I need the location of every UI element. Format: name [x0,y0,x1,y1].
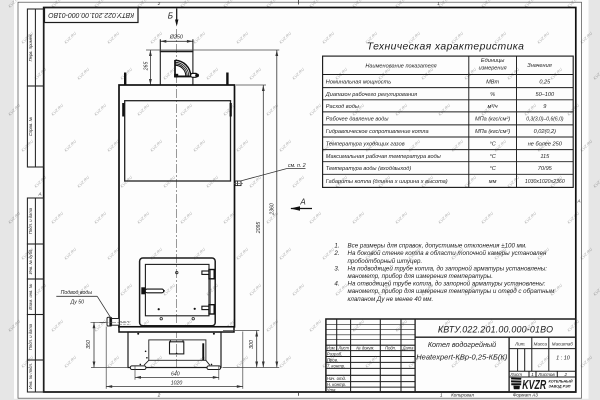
svg-text:На боковой стенке котла в обла: На боковой стенке котла в области топочн… [348,250,547,257]
svg-text:МПа (кгс/см²): МПа (кгс/см²) [475,129,510,135]
svg-text:Утв.: Утв. [327,387,337,392]
svg-text:°С: °С [489,166,496,172]
svg-text:Формат А3: Формат А3 [513,393,539,398]
svg-text:МВт: МВт [486,79,499,85]
svg-text:0,3(3,0)–0,6(6,0): 0,3(3,0)–0,6(6,0) [526,117,564,123]
svg-text:Дата: Дата [402,345,415,350]
svg-text:1 : 10: 1 : 10 [556,355,571,361]
svg-text:Б: Б [168,12,173,21]
svg-text:м³/ч: м³/ч [488,104,498,110]
svg-text:Инв. № дубл.: Инв. № дубл. [28,249,33,275]
svg-text:пробоотборный штуцер.: пробоотборный штуцер. [348,258,423,265]
svg-text:1030х1020х2360: 1030х1020х2360 [525,179,565,185]
svg-text:2: 2 [157,392,161,397]
svg-text:Рабочее давление воды: Рабочее давление воды [326,117,389,123]
svg-text:°С: °С [489,154,496,160]
svg-text:Пров.: Пров. [327,357,338,362]
svg-text:Разраб.: Разраб. [327,351,343,356]
svg-text:МПа (кгс/см²): МПа (кгс/см²) [475,117,510,123]
svg-text:не более 250: не более 250 [528,142,563,148]
svg-text:2360: 2360 [269,203,275,216]
svg-text:Изм.: Изм. [327,345,336,350]
svg-text:Диапазон рабочего регулировани: Диапазон рабочего регулирования [325,92,417,98]
svg-text:мм: мм [489,179,497,185]
svg-text:1.: 1. [334,243,339,250]
svg-text:ЗАВОД РЭП: ЗАВОД РЭП [549,385,571,389]
svg-text:Копировал: Копировал [451,393,474,398]
svg-text:Номинальная мощность: Номинальная мощность [326,79,391,85]
svg-text:Т. контр.: Т. контр. [327,363,346,368]
svg-text:А: А [576,199,580,204]
svg-text:Подп. и дата: Подп. и дата [28,207,33,234]
svg-text:1020: 1020 [171,380,183,386]
svg-text:манометр, прибор для измерения: манометр, прибор для измерения температу… [348,273,493,280]
svg-text:На подводящей трубе котла, до: На подводящей трубе котла, до запорной а… [348,265,548,272]
svg-text:Масса: Масса [534,341,548,346]
svg-text:KVZR: KVZR [522,378,547,392]
svg-text:Все размеры для справок, допус: Все размеры для справок, допустимые откл… [348,243,527,250]
svg-text:Подп. и дата: Подп. и дата [28,323,33,350]
svg-text:Взам. инв. №: Взам. инв. № [28,283,33,309]
svg-text:Максимальная рабочая температу: Максимальная рабочая температура воды [326,154,441,160]
svg-text:3.: 3. [334,265,339,272]
svg-text:°С: °С [489,142,496,148]
svg-text:Лист: Лист [509,372,522,377]
svg-text:Котел водогрейный: Котел водогрейный [428,340,496,349]
svg-text:Техническая характеристика: Техническая характеристика [367,42,525,53]
svg-text:1: 1 [440,393,443,398]
svg-text:Единицы: Единицы [481,58,504,64]
svg-text:Heatexpert-КВр-0,25-КБ(К): Heatexpert-КВр-0,25-КБ(К) [416,353,508,362]
svg-text:А: А [299,198,305,207]
svg-text:КВТУ.022.201.00.000-01ВО: КВТУ.022.201.00.000-01ВО [438,324,553,334]
svg-text:Перв. примен.: Перв. примен. [28,34,33,62]
svg-text:2: 2 [157,1,161,6]
svg-text:КВТУ.022.201.00.000-01ВО: КВТУ.022.201.00.000-01ВО [48,11,134,18]
svg-text:640: 640 [171,371,180,377]
svg-text:300: 300 [249,340,255,349]
svg-text:Лит.: Лит. [514,341,526,346]
svg-text:На отводящей трубе котла, до з: На отводящей трубе котла, до запорной ар… [348,281,546,288]
svg-text:0,02(0,2): 0,02(0,2) [534,129,557,135]
svg-text:350: 350 [86,340,92,349]
svg-text:клапаном Ду не менее 40 мм.: клапаном Ду не менее 40 мм. [348,296,434,303]
svg-text:Справ. №: Справ. № [28,117,33,136]
svg-text:Температура уходящих газов: Температура уходящих газов [326,142,405,148]
svg-text:Масштаб: Масштаб [552,341,573,346]
svg-text:Н. контр.: Н. контр. [327,382,346,387]
svg-text:50–100: 50–100 [535,92,555,98]
svg-text:4.: 4. [334,281,339,288]
svg-text:Габариты котла (длинна х ширин: Габариты котла (длинна х ширина х высота… [326,179,448,185]
svg-text:Наименование показателя: Наименование показателя [365,64,436,70]
svg-text:А: А [37,192,41,197]
svg-text:Значения: Значения [527,63,551,69]
svg-text:Ду 50: Ду 50 [70,299,85,305]
svg-text:Температура воды (вход/выход): Температура воды (вход/выход) [326,166,412,172]
svg-text:Подп.: Подп. [385,345,396,350]
svg-text:%: % [490,92,495,98]
svg-text:Расход воды: Расход воды [326,104,359,110]
svg-text:манометр, прибор для измерения: манометр, прибор для измерения температу… [348,288,556,295]
svg-text:Листов: Листов [537,372,555,377]
svg-text:Лист: Лист [337,345,349,350]
svg-text:70/95: 70/95 [538,166,553,172]
svg-text:115: 115 [540,154,550,160]
svg-text:2: 2 [564,372,568,377]
svg-text:КОТЕЛЬНЫЙ: КОТЕЛЬНЫЙ [549,379,573,383]
svg-text:см. п. 2: см. п. 2 [288,163,306,169]
svg-text:Инв. № подл.: Инв. № подл. [28,363,33,389]
svg-text:2095: 2095 [256,222,262,235]
svg-text:265: 265 [143,62,149,72]
svg-text:Ø250: Ø250 [169,35,183,41]
svg-text:2.: 2. [333,250,339,257]
svg-text:Гидравлическое сопротивление к: Гидравлическое сопротивление котла [326,129,429,135]
svg-text:Подвод воды: Подвод воды [61,290,93,296]
svg-text:измерения: измерения [479,66,507,72]
svg-text:№ докум.: № докум. [356,345,374,350]
svg-text:9: 9 [543,104,546,110]
svg-text:Нач. отд.: Нач. отд. [327,376,346,381]
svg-text:0,25: 0,25 [539,79,551,85]
